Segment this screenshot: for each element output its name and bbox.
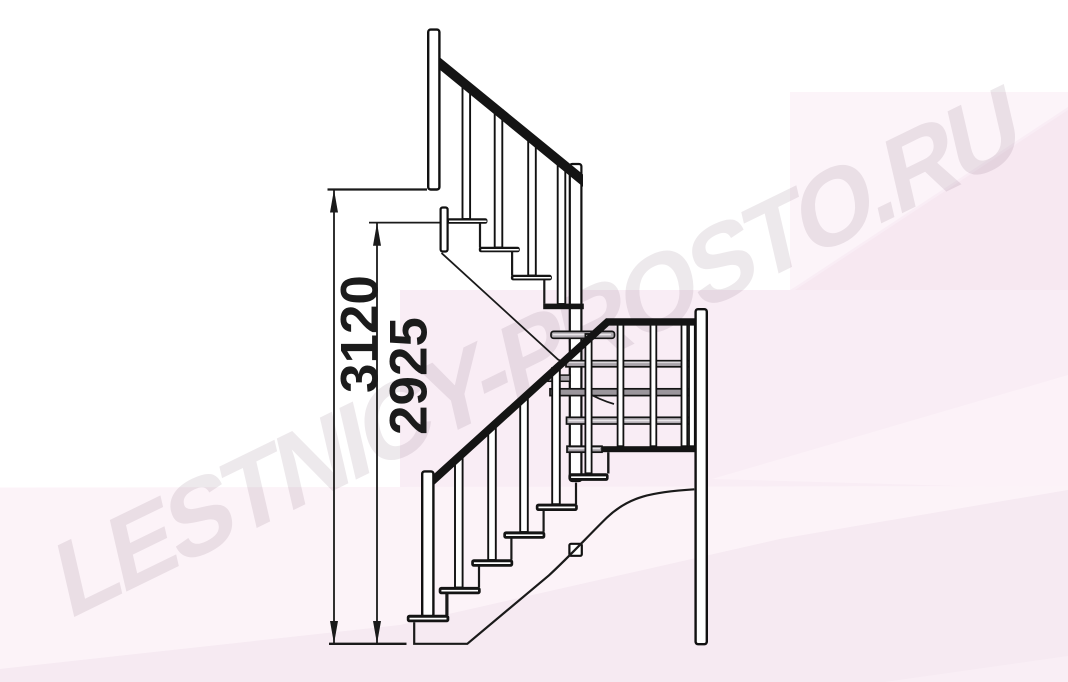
svg-text:2925: 2925 — [380, 317, 439, 435]
